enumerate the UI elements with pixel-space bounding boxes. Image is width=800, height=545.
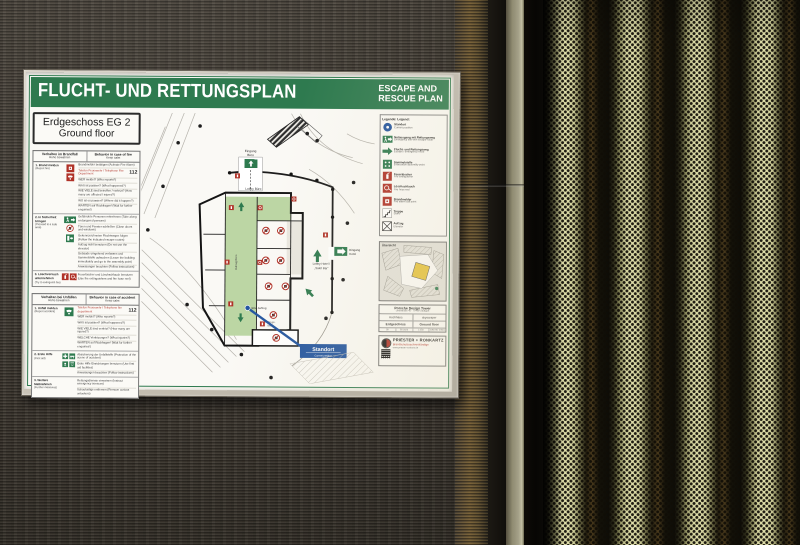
site-overview-map: Übersicht <box>379 241 447 301</box>
maker-logo-icon <box>381 338 391 348</box>
hotel-entrance: Eingang Hotel <box>328 247 360 260</box>
office-entrance: Eingang Büro <box>238 149 262 191</box>
title-english-line2: RESCUE PLAN <box>378 94 443 105</box>
legend-item-text: LöschschlauchFire hose reel <box>394 186 415 192</box>
accident-table-header: Verhalten bei UnfällenRuhe bewahren Beha… <box>33 294 139 305</box>
legend-item-text: SammelstelleEvacuation assembly point <box>394 161 425 167</box>
legend-item-standort: StandortCurrent position <box>382 122 445 132</box>
fire-extinguisher-icon <box>62 274 69 281</box>
legend-item-text: AufzugElevator <box>394 223 404 229</box>
fire-header-de-sub: Ruhe bewahren <box>33 156 86 160</box>
floor-name-en: Ground floor <box>35 128 139 140</box>
eye-wash-icon <box>62 361 68 367</box>
accident-step-2-subtitle: (First aid) <box>34 357 60 360</box>
info-meta-rev: 00 <box>379 329 395 332</box>
label-aufzug-buero: Aufzug Büro <box>234 254 238 270</box>
legend-en: Escape / emergency route <box>394 152 429 155</box>
floor-plan: Eingang Büro <box>140 113 376 384</box>
label-eingang-buero-2: Büro <box>247 153 254 157</box>
instruction-line: WARTEN auf Rückfragen! (Wait for further… <box>78 204 137 213</box>
escape-plan-board: FLUCHT- UND RETTUNGSPLAN ESCAPE AND RESC… <box>21 69 461 399</box>
instructions-column: Erdgeschoss EG 2 Ground floor Verhalten … <box>31 112 141 398</box>
emergency-number-text: Telefon Feuerwehr / Telephone fire depar… <box>78 306 129 314</box>
fire-header-en: Behavior in case of fireKeep calm <box>86 151 140 161</box>
qr-code <box>381 349 390 358</box>
legend-item-assembly-point: SammelstelleEvacuation assembly point <box>382 159 445 169</box>
fire-hose-icon <box>70 274 77 281</box>
first-aid-icons <box>62 353 75 359</box>
info-meta-date: 05-2023 <box>395 329 412 332</box>
legend-box: Legende: Legend: StandortCurrent positio… <box>379 114 448 236</box>
fire-instructions-table: Verhalten im BrandfallRuhe bewahren Beha… <box>32 150 141 288</box>
trim-seam <box>455 184 524 187</box>
legend-item-fire-extinguisher: FeuerlöscherFire extinguisher <box>382 171 445 181</box>
fire-step-2-icons <box>62 215 77 270</box>
phone-icon <box>66 173 74 181</box>
legend-item-text: Flucht- und RettungswegEscape / emergenc… <box>394 148 429 155</box>
emergency-number-text: Telefon Feuerwehr / Telephone Fire Depar… <box>78 169 129 177</box>
assembly-dot <box>435 286 438 289</box>
plan-sheet: FLUCHT- UND RETTUNGSPLAN ESCAPE AND RESC… <box>24 72 454 392</box>
accident-step-3-lines: Rettungsdienste einweisen (Instruct emer… <box>76 379 137 397</box>
maker-text: PRIESTER + RONKARTZ Brandschutzsachverst… <box>393 338 444 364</box>
overview-label: Übersicht <box>382 243 396 247</box>
fire-step-2: 2. In Sicherheit bringen(Proceed to a sa… <box>33 214 139 272</box>
floor-name-de: Erdgeschoss EG 2 <box>35 116 139 129</box>
assembly-point-icon <box>382 159 392 169</box>
plan-content: FLUCHT- UND RETTUNGSPLAN ESCAPE AND RESC… <box>27 75 451 389</box>
accident-header-de-sub: Ruhe bewahren <box>33 299 86 303</box>
instruction-line: Anweisungen beachten (Follow instruction… <box>77 371 136 376</box>
instruction-line: Gebäude umgehend verlassen und Sammelste… <box>78 252 137 265</box>
accident-step-1-icons <box>61 306 76 350</box>
emergency-exit-icon <box>382 134 392 144</box>
legend-item-escape-route: Flucht- und RettungswegEscape / emergenc… <box>382 146 445 156</box>
emergency-exit-icon <box>64 216 76 223</box>
address-line2: 70469 Stuttgart <box>413 309 429 312</box>
label-lobby-hotel-1: Lobby Hotel / <box>313 262 331 266</box>
fire-step-1-icons <box>62 163 77 212</box>
accident-step-2-label: 2. Erste Hilfe(First aid) <box>33 352 61 375</box>
fire-header-de: Verhalten im BrandfallRuhe bewahren <box>33 151 86 161</box>
exit-door-icon <box>65 234 73 242</box>
panel-shadow-gap <box>524 0 543 545</box>
building-info-box: Porsche Design Tower Leitzstraße 45 · 70… <box>378 304 446 333</box>
fire-step-3-title: 3. Löschversuch unternehmen <box>35 273 61 280</box>
fire-step-3: 3. Löschversuch unternehmen(Try to extin… <box>33 271 139 286</box>
no-elevator-icons <box>262 227 289 341</box>
accident-step-1-lines: Telefon Feuerwehr / Telephone fire depar… <box>76 306 137 350</box>
address-line1: Leitzstraße 45 <box>396 309 411 312</box>
escape-route-arrow-icon <box>382 146 392 156</box>
instruction-line: Schaulustige entfernen (Remove curious o… <box>77 388 136 397</box>
maker-subtitle: Brandschutzsachverständige <box>393 343 444 347</box>
metal-trim-strip <box>506 0 524 545</box>
overview-map-drawing <box>380 242 446 300</box>
accident-header-en: Behavior in case of accidentKeep calm <box>85 294 139 304</box>
perforated-metal-panel <box>543 0 800 545</box>
title-english: ESCAPE AND RESCUE PLAN <box>378 83 443 104</box>
legend-title: Legende: Legend: <box>382 117 445 121</box>
photo-scene: FLUCHT- UND RETTUNGSPLAN ESCAPE AND RESC… <box>0 0 800 545</box>
legend-en: Fire hose reel <box>394 189 415 192</box>
fire-alarm-icon <box>382 196 392 206</box>
fire-hose-icon <box>382 184 392 194</box>
info-meta-scale: 1:250 <box>412 329 429 332</box>
stairs-icon <box>382 208 392 218</box>
accident-header-de: Verhalten bei UnfällenRuhe bewahren <box>33 294 86 304</box>
accident-step-1: 1. Unfall melden(Report accident) Telefo… <box>32 305 138 352</box>
accident-step-3-icons <box>61 379 76 397</box>
title-english-line1: ESCAPE AND <box>378 83 443 94</box>
legend-item-elevator: AufzugElevator <box>382 221 445 231</box>
emergency-number-112: 112 <box>128 307 136 313</box>
legend-en: Current position <box>394 127 412 130</box>
legend-item-text: Notausgang mit RettungswegEmergency exit… <box>394 136 435 143</box>
label-hotel-aufzug: Hotel Aufzug <box>251 306 267 310</box>
emergency-shower-icon <box>69 361 75 367</box>
floor-label-box: Erdgeschoss EG 2 Ground floor <box>33 112 141 145</box>
standort-icon <box>382 122 392 132</box>
floor-plan-drawing: Eingang Büro <box>140 113 376 384</box>
accident-step-2-lines: Absicherung der Unfallstelle (Protection… <box>76 352 137 375</box>
legend-en: Fire alarm call point <box>394 201 417 204</box>
title-bar: FLUCHT- UND RETTUNGSPLAN ESCAPE AND RESC… <box>31 77 449 110</box>
legend-en: Emergency exit with escape route <box>394 139 435 142</box>
label-lobby-buero: Lobby Büro <box>245 187 261 191</box>
maker-contact: www.priester-ronkartz.de <box>393 347 444 350</box>
fire-step-1-subtitle: (Report fire) <box>35 167 61 170</box>
fire-step-2-label: 2. In Sicherheit bringen(Proceed to a sa… <box>34 215 62 270</box>
wall-shadow-gap <box>488 0 506 545</box>
fire-step-2-lines: Gefährdete Personen mitnehmen (Take alon… <box>77 215 138 270</box>
building-footprint <box>199 192 303 345</box>
fire-step-3-subtitle: (Try to extinguish fire) <box>35 281 61 284</box>
maker-marks <box>381 338 391 364</box>
info-floor-en: Ground floor <box>412 322 446 328</box>
accident-step-3-label: 3. Weitere Maßnahmen(Further measures) <box>33 378 61 396</box>
label-lobby-hotel-2: „Salot Bar“ <box>314 266 328 270</box>
accident-header-en-sub: Keep calm <box>86 299 139 303</box>
legend-en: Fire extinguisher <box>394 177 413 180</box>
legend-en: Elevator <box>394 226 404 229</box>
legend-column: Legende: Legend: StandortCurrent positio… <box>378 114 448 367</box>
phone-icon <box>64 307 73 316</box>
fire-extinguisher-icon <box>382 171 392 181</box>
title-german: FLUCHT- UND RETTUNGSPLAN <box>38 80 297 104</box>
legend-item-text: FeuerlöscherFire extinguisher <box>394 173 413 179</box>
fire-step-1-lines: Brandmelder betätigen (Activate Fire Ala… <box>77 163 138 213</box>
accident-step-1-subtitle: (Report accident) <box>35 310 61 313</box>
accident-step-3: 3. Weitere Maßnahmen(Further measures) R… <box>32 377 138 397</box>
legend-item-fire-alarm: BrandmelderFire alarm call point <box>382 196 445 206</box>
legend-item-emergency-exit: Notausgang mit RettungswegEmergency exit… <box>382 134 445 144</box>
accident-step-2: 2. Erste Hilfe(First aid) <box>32 351 138 378</box>
standort-label: Standort <box>312 347 334 353</box>
first-aid-icons-2 <box>62 361 75 367</box>
no-elevator-icon <box>66 225 74 233</box>
fire-step-1-label: 1. Brand melden(Report fire) <box>34 163 62 212</box>
fire-step-1: 1. Brand melden(Report fire) Brandmelder… <box>33 162 139 215</box>
label-eingang-hotel-2: Hotel <box>349 252 356 256</box>
instruction-line: WIE VIELE sind betroffen / verletzt? (Ho… <box>78 189 137 199</box>
extinguisher-icons <box>62 274 77 281</box>
accident-step-2-icons <box>61 352 76 375</box>
info-row-meta: 00 05-2023 1:250 DIN ISO 23601 <box>379 329 445 332</box>
legend-item-stairs: TreppeStairs <box>382 208 445 218</box>
instruction-line: Anweisungen beachten (Follow instruction… <box>78 265 137 270</box>
fire-step-3-icons <box>62 273 77 286</box>
accident-instructions-table: Verhalten bei UnfällenRuhe bewahren Beha… <box>31 293 140 399</box>
fire-step-3-label: 3. Löschversuch unternehmen(Try to extin… <box>34 272 62 285</box>
legend-item-fire-hose: LöschschlauchFire hose reel <box>382 184 445 194</box>
first-aid-icon <box>62 353 68 359</box>
info-type-en: skyscraper <box>412 315 446 321</box>
fire-step-2-subtitle: (Proceed to a safe area) <box>35 223 61 230</box>
elevator-icon <box>382 221 392 231</box>
fire-step-3-lines: Feuerlöscher und Löschschlauch benutzen … <box>77 273 138 286</box>
info-floor-de: Erdgeschoss <box>379 322 412 328</box>
ramp-hatch <box>267 116 308 147</box>
legend-item-text: BrandmelderFire alarm call point <box>394 198 417 204</box>
accident-step-3-subtitle: (Further measures) <box>34 387 60 390</box>
fire-alarm-icon <box>66 164 74 172</box>
stretcher-icon <box>69 353 75 359</box>
info-type-de: Hochhaus <box>379 315 412 321</box>
maker-footer: PRIESTER + RONKARTZ Brandschutzsachverst… <box>378 336 446 367</box>
legend-en: Stairs <box>394 214 404 217</box>
instruction-line: Feuerlöscher und Löschschlauch benutzen … <box>78 273 137 282</box>
info-meta-norm: DIN ISO 23601 <box>429 329 446 332</box>
fire-header-en-sub: Keep calm <box>87 156 140 160</box>
instruction-line: WARTEN auf Rückfragen! (Wait for further… <box>77 341 136 350</box>
legend-item-text: StandortCurrent position <box>394 124 412 130</box>
legend-item-text: TreppeStairs <box>394 210 404 216</box>
legend-en: Evacuation assembly point <box>394 164 425 167</box>
accident-step-1-label: 1. Unfall melden(Report accident) <box>33 306 61 350</box>
emergency-number-112: 112 <box>129 170 137 176</box>
fire-table-header: Verhalten im BrandfallRuhe bewahren Beha… <box>33 151 139 162</box>
